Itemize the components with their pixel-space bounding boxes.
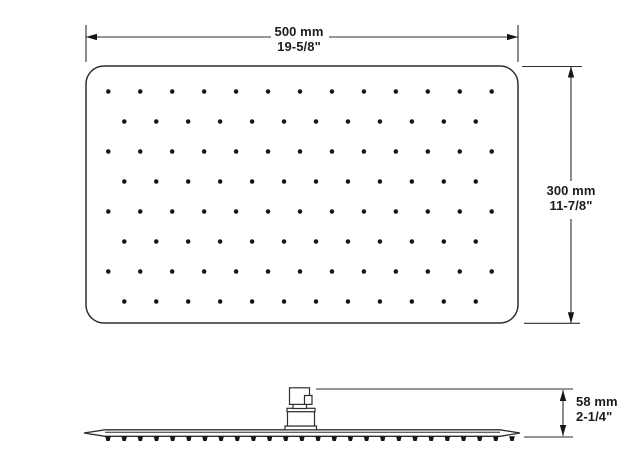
technical-drawing-svg <box>0 0 629 468</box>
width-metric-value: 500 mm <box>239 25 359 40</box>
height-dimension-label: 300 mm 11-7/8" <box>521 184 621 213</box>
depth-imperial-value: 2-1/4" <box>576 410 629 425</box>
top-view-plate <box>86 66 518 323</box>
height-imperial-value: 11-7/8" <box>521 199 621 214</box>
side-view-connector <box>285 388 317 430</box>
side-view-nozzles <box>105 436 515 441</box>
depth-dimension-label: 58 mm 2-1/4" <box>576 395 629 424</box>
width-imperial-value: 19-5/8" <box>239 40 359 55</box>
side-view <box>84 430 520 437</box>
depth-metric-value: 58 mm <box>576 395 629 410</box>
dimension-diagram-page: 500 mm 19-5/8" 300 mm 11-7/8" 58 mm 2-1/… <box>0 0 629 468</box>
width-dimension-label: 500 mm 19-5/8" <box>239 25 359 54</box>
height-metric-value: 300 mm <box>521 184 621 199</box>
